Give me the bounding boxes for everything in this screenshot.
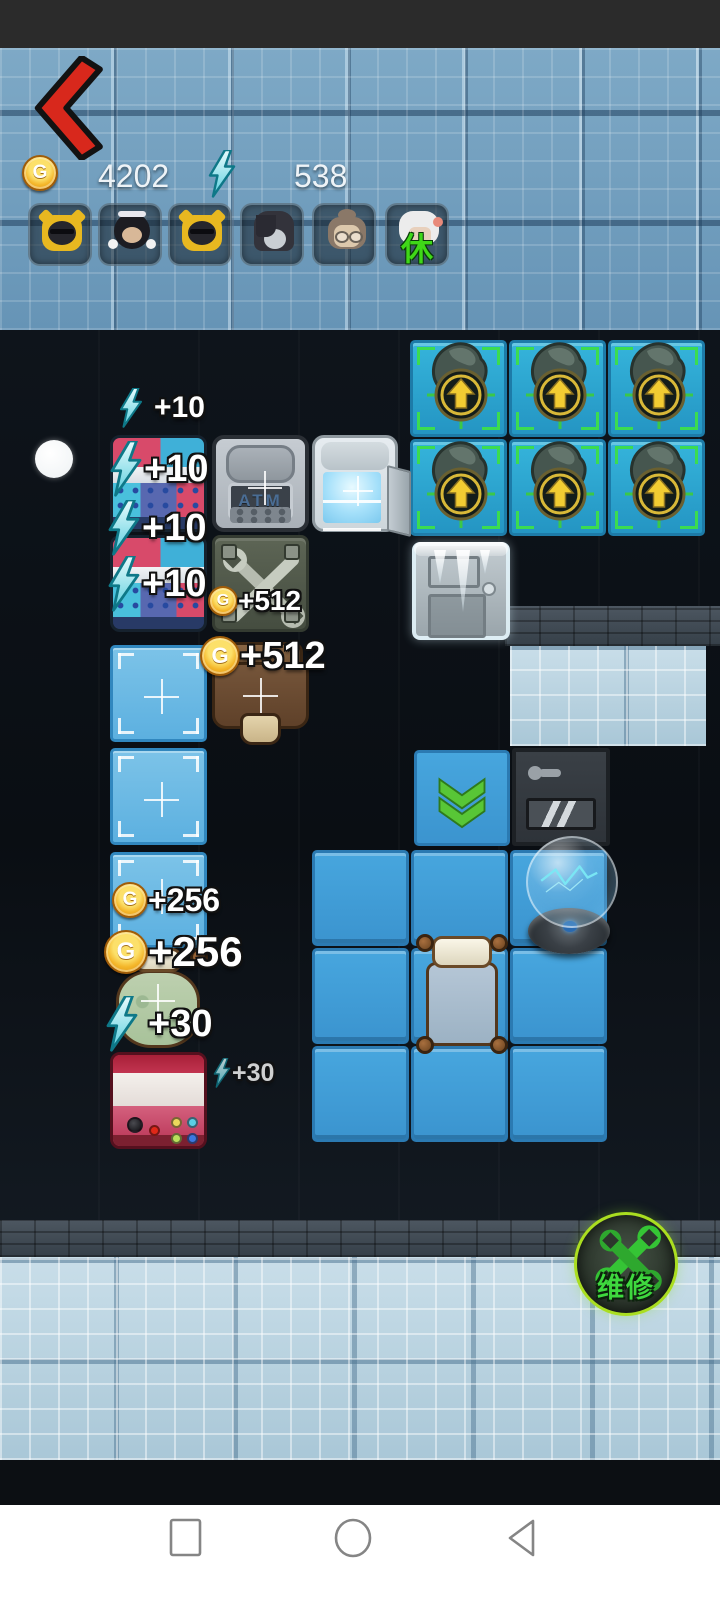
- white-indicator-dot: [35, 440, 73, 478]
- resting-status-text: 休: [401, 224, 433, 270]
- avatar-grandma[interactable]: [312, 203, 376, 266]
- bed[interactable]: [414, 934, 510, 1056]
- avatar-resting[interactable]: 休: [385, 203, 449, 266]
- avatar-cat-hood-1[interactable]: [28, 203, 92, 266]
- pink-arcade-machine[interactable]: [110, 1052, 207, 1149]
- floor-tile[interactable]: [312, 850, 409, 946]
- brick-ledge-right: [505, 606, 720, 646]
- upgrade-crate[interactable]: [608, 340, 705, 437]
- blue-button: [187, 1133, 198, 1144]
- floor-tile[interactable]: [510, 948, 607, 1044]
- floor-tile[interactable]: [312, 1046, 409, 1142]
- upgrade-crate[interactable]: [410, 439, 507, 536]
- ice-patch: [510, 646, 706, 746]
- upgrade-crate[interactable]: [410, 340, 507, 437]
- refrigerator-open[interactable]: [312, 435, 398, 532]
- recents-button[interactable]: [168, 1518, 204, 1558]
- door-handle: [528, 766, 542, 780]
- placement-slot[interactable]: [110, 852, 207, 948]
- energy-icon: [206, 150, 238, 198]
- cyan-button: [187, 1117, 198, 1128]
- avatar-cat-hood-2[interactable]: [168, 203, 232, 266]
- armchair[interactable]: [212, 642, 309, 745]
- bottom-dark-band: [0, 1460, 720, 1505]
- joystick: [127, 1117, 143, 1133]
- green-button: [171, 1133, 182, 1144]
- upgrade-crate[interactable]: [509, 439, 606, 536]
- android-status-bar: [0, 0, 720, 48]
- floor-tile[interactable]: [312, 948, 409, 1044]
- repair-tile[interactable]: [212, 535, 309, 632]
- back-nav-button[interactable]: [505, 1518, 541, 1558]
- coin-amount: 4202: [98, 158, 169, 195]
- yellow-button: [171, 1117, 182, 1128]
- down-chevrons-icon: [417, 753, 507, 843]
- floor-tile[interactable]: [411, 1046, 508, 1142]
- floor-tile[interactable]: [510, 1046, 607, 1142]
- atm-machine[interactable]: ATM: [212, 435, 309, 532]
- plasma-lightning-icon: [530, 844, 610, 924]
- hazard-stripe-panel: [526, 798, 596, 830]
- back-button[interactable]: [26, 56, 110, 160]
- upgrade-crate[interactable]: [509, 340, 606, 437]
- repair-button[interactable]: 维修: [574, 1212, 678, 1316]
- arcade-machine-2[interactable]: [110, 535, 207, 632]
- placement-slot[interactable]: [110, 645, 207, 742]
- avatar-dark-hair[interactable]: [240, 203, 304, 266]
- avatar-bow-girl[interactable]: [98, 203, 162, 266]
- game-screen: G 4202 538 休: [0, 0, 720, 1600]
- floor-tile[interactable]: [411, 850, 508, 946]
- green-bed-occupied[interactable]: [108, 948, 208, 1052]
- placement-slot[interactable]: [110, 748, 207, 845]
- arcade-machine-1[interactable]: [110, 435, 207, 532]
- upgrade-crate[interactable]: [608, 439, 705, 536]
- plasma-ball[interactable]: [524, 836, 616, 954]
- entrance-chevron-tile[interactable]: [414, 750, 510, 846]
- home-button[interactable]: [333, 1518, 373, 1558]
- metal-door[interactable]: [512, 748, 610, 846]
- coin-currency-icon: G: [22, 155, 58, 191]
- repair-button-label: 维修: [597, 1266, 655, 1305]
- energy-amount: 538: [294, 158, 347, 195]
- red-button: [149, 1125, 160, 1136]
- frozen-door[interactable]: [412, 542, 510, 640]
